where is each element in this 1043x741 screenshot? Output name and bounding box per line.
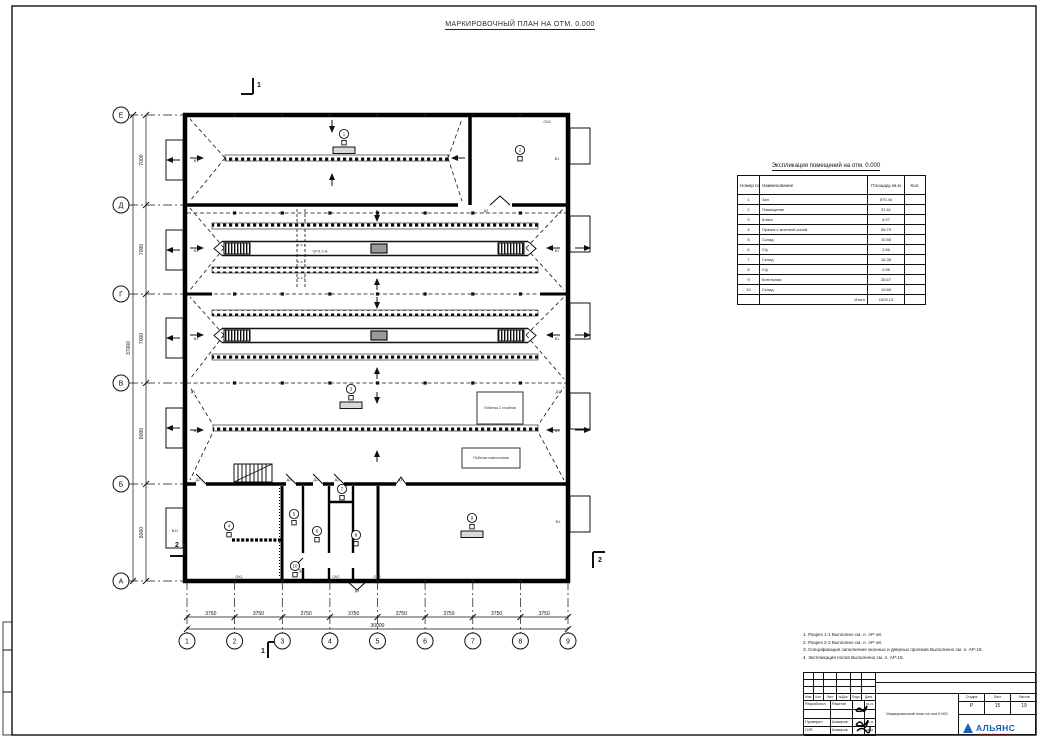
note-item: 1. Разрез 1-1 Выполнен см. л. АР-18.	[803, 631, 1039, 639]
explication-title: Экспликация помещений на отм. 0.000	[737, 163, 915, 169]
stamp-cell	[837, 673, 851, 680]
table-row: 2Помещение37.61	[738, 205, 926, 215]
stamp-cell	[876, 673, 1037, 683]
column-dot	[519, 381, 522, 384]
column-dot	[233, 381, 236, 384]
stamp-cell	[824, 687, 837, 694]
column-dot	[281, 113, 284, 116]
stamp-cell	[862, 687, 876, 694]
stamp-role-cell: ГИП	[804, 727, 831, 736]
svg-text:Побелка известковая: Побелка известковая	[473, 456, 509, 460]
stamp-cell	[824, 673, 837, 680]
title-block: Изм.Кол.Лист№Док.Подп.ДатаРазработалРаки…	[803, 672, 1036, 735]
stamp-name-cell: Шакиров	[831, 719, 853, 728]
column-dot	[424, 211, 427, 214]
axis-label: 9	[566, 638, 570, 645]
plan-label: В1	[555, 157, 560, 161]
plan-label: Д2	[335, 478, 340, 482]
plan-label: В1	[555, 249, 560, 253]
column-dot	[233, 579, 236, 582]
plan-label: ОК1	[235, 575, 242, 579]
svg-text:10: 10	[293, 564, 298, 569]
sheet-value: 15	[985, 702, 1011, 715]
stamp-cell	[814, 687, 824, 694]
stamp-header-cell: Кол.	[814, 694, 824, 701]
axis-label: 6	[423, 638, 427, 645]
axis-label: 1	[185, 638, 189, 645]
axis-label: 8	[518, 638, 522, 645]
dimension-label: 3750	[443, 611, 454, 617]
note-item: 4. Экспликация полов Выполнено см. л. АР…	[803, 654, 1039, 662]
lane-label: Q=3.2 м	[313, 249, 328, 254]
central-lanes	[214, 242, 536, 343]
sheets-value: 19	[1011, 702, 1037, 715]
column-dot	[471, 579, 474, 582]
svg-text:Побелка 2 слойная: Побелка 2 слойная	[484, 406, 516, 410]
sheets-label: Листов	[1011, 694, 1037, 702]
stamp-header-cell: Дата	[862, 694, 876, 701]
axis-label: 3	[280, 638, 284, 645]
plan-label: В11	[172, 529, 178, 533]
plan-label: Д4	[398, 478, 403, 482]
column-dot	[471, 292, 474, 295]
column-dot	[471, 381, 474, 384]
table-row: 8С/у2.96	[738, 265, 926, 275]
table-row: 4Прачка с моечной зоной58.79	[738, 225, 926, 235]
column-dot	[281, 381, 284, 384]
stamp-cell	[837, 687, 851, 694]
column-dot	[328, 113, 331, 116]
table-row: 6С/у2.66	[738, 245, 926, 255]
plan-label: В1	[194, 249, 199, 253]
stamp-date-cell: 04.21	[865, 727, 876, 736]
plan-label: Д1	[556, 390, 561, 394]
column-dot	[376, 113, 379, 116]
dimension-label: 7000	[139, 154, 145, 165]
column-dot	[424, 113, 427, 116]
table-header: Площадь кв.м	[868, 176, 905, 195]
axis-label: 2	[233, 638, 237, 645]
stamp-cell	[862, 673, 876, 680]
axis-label: Д	[119, 202, 124, 209]
column-dot	[471, 211, 474, 214]
staircase	[234, 464, 272, 482]
column-dot	[471, 113, 474, 116]
stamp-header-cell: №Док.	[837, 694, 851, 701]
plan-label: Д2	[196, 478, 201, 482]
table-header: Кол.	[905, 176, 926, 195]
column-dot	[328, 211, 331, 214]
column-dot	[233, 113, 236, 116]
notes-block: 1. Разрез 1-1 Выполнен см. л. АР-18.2. Р…	[803, 631, 1039, 661]
dimension-label: 7000	[139, 333, 145, 344]
column-dot	[376, 579, 379, 582]
dimension-label: 3750	[396, 611, 407, 617]
stamp-signature-cell	[853, 719, 865, 728]
dimension-label: 3750	[348, 611, 359, 617]
table-row: 5Склад10.56	[738, 235, 926, 245]
table-total-row: Итого1009.13	[738, 295, 926, 305]
plan-label: ОК2	[332, 575, 339, 579]
column-dot	[328, 292, 331, 295]
feed-strips	[212, 155, 538, 431]
column-dot	[519, 579, 522, 582]
equipment-box	[371, 244, 387, 253]
column-dot	[328, 381, 331, 384]
section-number: 1	[261, 648, 265, 655]
stage-label: Стадия	[959, 694, 985, 702]
building-walls	[185, 115, 568, 590]
drawing-sheet: { "sheet": { "title": "МАРКИРОВОЧНЫЙ ПЛА…	[0, 0, 1043, 741]
dimension-label: 8000	[139, 527, 145, 538]
page-title: МАРКИРОВОЧНЫЙ ПЛАН НА ОТМ. 0.000	[340, 21, 700, 28]
axis-label: В	[119, 380, 124, 387]
dimension-label: 7000	[139, 244, 145, 255]
stamp-role-cell: Проверил	[804, 719, 831, 728]
equipment-symbol	[340, 402, 362, 409]
section-number: 1	[257, 82, 261, 89]
plan-label: Д5	[299, 569, 304, 573]
sheet-label: Лист	[985, 694, 1011, 702]
plan-label: ОК3	[543, 120, 550, 124]
stamp-signature-cell	[853, 710, 865, 719]
stamp-cell	[804, 687, 814, 694]
stamp-signature-cell	[853, 727, 865, 736]
plan-label: Д3	[484, 209, 489, 213]
column-dot	[233, 211, 236, 214]
plan-label: Д2	[314, 478, 319, 482]
dimension-label: 3750	[301, 611, 312, 617]
column-dot	[519, 211, 522, 214]
table-row: 7Склад16.38	[738, 255, 926, 265]
column-dot	[376, 381, 379, 384]
stamp-cell	[804, 680, 814, 687]
stamp-cell	[837, 680, 851, 687]
stamp-cell	[814, 680, 824, 687]
plan-label: В1	[194, 337, 199, 341]
stamp-signature-cell	[853, 701, 865, 710]
axis-label: 7	[471, 638, 475, 645]
stamp-cell	[851, 687, 862, 694]
plan-label: В1	[194, 159, 199, 163]
axis-label: А	[119, 578, 124, 585]
axis-label: Е	[119, 112, 124, 119]
stamp-role-cell: Разработал	[804, 701, 831, 710]
section-number: 2	[175, 542, 179, 549]
plan-label: В1	[194, 429, 199, 433]
dimension-label: 3750	[539, 611, 550, 617]
stamp-cell	[876, 683, 1037, 694]
dimension-label: 3750	[253, 611, 264, 617]
axis-label: Г	[119, 291, 123, 298]
dimension-label: 8000	[139, 428, 145, 439]
stamp-date-cell	[865, 710, 876, 719]
plan-drawing: Побелка 2 слойная Побелка известковая ЕД…	[0, 0, 1043, 741]
column-dot	[281, 292, 284, 295]
column-dot	[376, 292, 379, 295]
explication-table: Экспликация помещений на отм. 0.000 Номе…	[737, 163, 915, 305]
column-dot	[281, 211, 284, 214]
column-dot	[233, 292, 236, 295]
stamp-name-cell: Ракитин	[831, 701, 853, 710]
note-item: 3. Спецификация заполнения оконных и две…	[803, 646, 1039, 654]
plan-label: ОК2	[373, 575, 380, 579]
stamp-date-cell: 04.21	[865, 719, 876, 728]
equipment-symbol	[333, 147, 355, 154]
stamp-header-cell: Подп.	[851, 694, 862, 701]
stamp-header-cell: Изм.	[804, 694, 814, 701]
axis-label: 5	[376, 638, 380, 645]
plan-label: Д1	[191, 390, 196, 394]
stamp-doc-title: Маркировочный план на отм 0.000	[876, 694, 959, 735]
note-item: 2. Разрез 2-2 Выполнен см. л. АР-18.	[803, 639, 1039, 647]
stamp-name-cell	[831, 710, 853, 719]
column-dot	[281, 579, 284, 582]
column-dot	[328, 579, 331, 582]
stamp-cell	[862, 680, 876, 687]
stage-value: Р	[959, 702, 985, 715]
equipment-symbol	[461, 531, 483, 538]
stamp-cell	[824, 680, 837, 687]
section-number: 2	[598, 557, 602, 564]
axis-label: 4	[328, 638, 332, 645]
table-row: 10Склад19.68	[738, 285, 926, 295]
equipment-box	[371, 331, 387, 340]
column-dot	[424, 381, 427, 384]
column-dot	[424, 579, 427, 582]
column-dot	[519, 292, 522, 295]
table-row: 3Класс6.07	[738, 215, 926, 225]
stamp-role-cell	[804, 710, 831, 719]
dimension-total: 37000	[126, 341, 132, 355]
plan-label: В1	[555, 429, 560, 433]
dimension-total: 30000	[371, 623, 385, 629]
dimension-label: 3750	[205, 611, 216, 617]
stamp-name-cell: Шакиров	[831, 727, 853, 736]
flow-arrows	[167, 120, 590, 462]
stamp-header-cell: Лист	[824, 694, 837, 701]
stamp-date-cell: 04.21	[865, 701, 876, 710]
column-dot	[424, 292, 427, 295]
stamp-cell	[804, 673, 814, 680]
table-header: Номер пом.	[738, 176, 760, 195]
company-logo: АЛЬЯНС строительная компания	[959, 721, 1036, 735]
table-row: 9Котельная28.67	[738, 275, 926, 285]
plan-label: Д4	[355, 589, 360, 593]
column-dot	[519, 113, 522, 116]
logo-triangle-icon	[963, 723, 973, 733]
section-marks	[170, 78, 605, 658]
dimension-label: 3750	[491, 611, 502, 617]
table-header: Наименование	[760, 176, 868, 195]
table-row: 1Зал570.44	[738, 195, 926, 205]
plan-label: В1	[556, 520, 561, 524]
column-dot	[376, 211, 379, 214]
axis-label: Б	[119, 481, 124, 488]
plan-label: Д3	[287, 478, 292, 482]
stamp-cell	[814, 673, 824, 680]
plan-label: В1	[555, 337, 560, 341]
stamp-cell	[851, 680, 862, 687]
stamp-cell	[851, 673, 862, 680]
